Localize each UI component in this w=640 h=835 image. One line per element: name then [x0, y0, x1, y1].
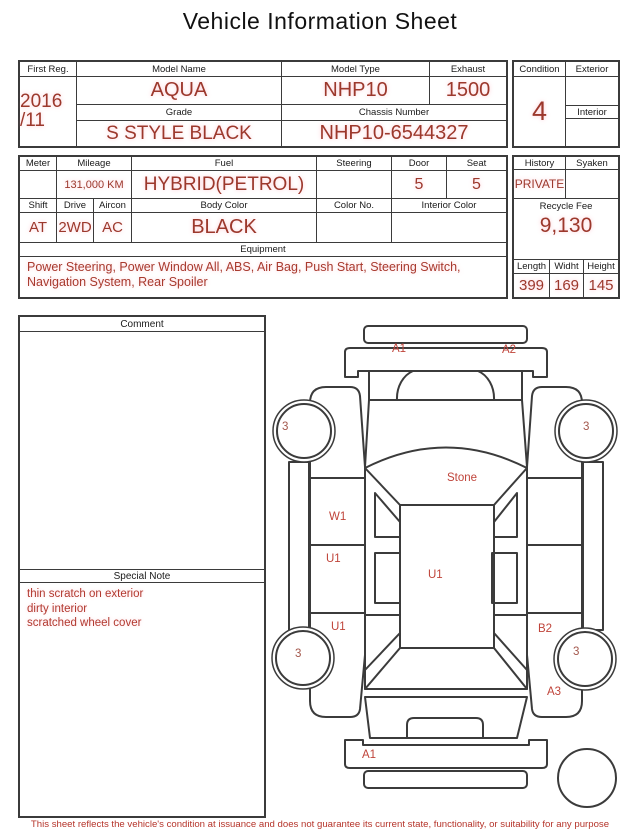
spare-tire — [558, 749, 616, 807]
right-rear-quarter-window — [494, 615, 527, 670]
body-color-label: Body Color — [132, 199, 317, 213]
interior-label: Interior — [566, 106, 618, 119]
front-bumper-top-strip — [364, 326, 527, 343]
damage-label-left-rear-door: U1 — [326, 553, 341, 565]
body-color-value: BLACK — [132, 213, 317, 243]
equipment-value: Power Steering, Power Window All, ABS, A… — [20, 257, 506, 297]
drive-value: 2WD — [57, 213, 94, 243]
right-front-door-panel — [527, 478, 582, 545]
damage-label-rear-right-wheel: 3 — [573, 646, 579, 658]
first-reg-label: First Reg. — [20, 62, 77, 77]
left-rear-quarter-window — [365, 615, 400, 670]
right-headlight-arc — [478, 371, 494, 400]
grade-label: Grade — [77, 105, 282, 121]
damage-label-windshield: Stone — [447, 472, 477, 484]
history-value: PRIVATE — [514, 170, 566, 199]
special-note-line: thin scratch on exterior — [27, 587, 257, 602]
syaken-label: Syaken — [566, 157, 618, 170]
equipment-label: Equipment — [20, 243, 506, 257]
grade-value: S STYLE BLACK — [77, 121, 282, 146]
model-type-value: NHP10 — [282, 77, 430, 105]
width-label: Widht — [550, 260, 584, 274]
syaken-value — [566, 170, 618, 199]
model-name-value: AQUA — [77, 77, 282, 105]
height-label: Height — [584, 260, 618, 274]
history-label: History — [514, 157, 566, 170]
damage-label-roof: U1 — [428, 569, 443, 581]
comment-panel: Comment Special Note thin scratch on ext… — [18, 315, 266, 818]
comment-body — [20, 332, 264, 569]
car-damage-diagram: A1 A2 3 3 Stone W1 U1 U1 U1 B2 3 3 A3 A1 — [270, 315, 640, 812]
model-name-label: Model Name — [77, 62, 282, 77]
seat-value: 5 — [447, 171, 506, 199]
damage-label-left-rocker: U1 — [331, 621, 346, 633]
page-title: Vehicle Information Sheet — [0, 8, 640, 35]
comment-label: Comment — [20, 317, 264, 332]
fuel-label: Fuel — [132, 157, 317, 171]
damage-label-front-left-wheel: 3 — [282, 421, 288, 433]
fuel-value: HYBRID(PETROL) — [132, 171, 317, 199]
steering-label: Steering — [317, 157, 392, 171]
special-note-label: Special Note — [20, 569, 264, 583]
right-door-window — [492, 553, 517, 603]
vehicle-spec-table: Meter Mileage Fuel Steering Door Seat 13… — [18, 155, 508, 299]
interior-color-label: Interior Color — [392, 199, 506, 213]
damage-label-left-front-door: W1 — [329, 511, 346, 523]
mileage-value: 131,000 KM — [57, 171, 132, 199]
rear-window — [365, 648, 527, 689]
length-label: Length — [514, 260, 550, 274]
condition-label: Condition — [514, 62, 566, 77]
height-value: 145 — [584, 274, 618, 297]
exterior-label: Exterior — [566, 62, 618, 77]
chassis-number-label: Chassis Number — [282, 105, 506, 121]
recycle-fee-value: 9,130 — [514, 214, 618, 260]
special-note-line: dirty interior — [27, 602, 257, 617]
aircon-value: AC — [94, 213, 132, 243]
hood-panel — [369, 371, 522, 400]
exhaust-label: Exhaust — [430, 62, 506, 77]
exhaust-value: 1500 — [430, 77, 506, 105]
drive-label: Drive — [57, 199, 94, 213]
left-door-window — [375, 553, 400, 603]
condition-value: 4 — [514, 77, 566, 146]
right-front-quarter-window — [494, 493, 517, 537]
interior-color-value — [392, 213, 506, 243]
left-headlight-arc — [397, 371, 413, 400]
damage-label-front-bumper-right: A2 — [502, 344, 516, 356]
vehicle-identity-table: First Reg. 2016 /11 Model Name AQUA Grad… — [18, 60, 508, 148]
first-reg-month: /11 — [20, 112, 45, 131]
rear-right-wheel-arch — [554, 628, 616, 690]
color-no-value — [317, 213, 392, 243]
right-rear-door-panel — [527, 545, 582, 613]
special-note-body: thin scratch on exterior dirty interior … — [20, 583, 264, 635]
meter-label: Meter — [20, 157, 57, 171]
damage-label-rear-bumper: A1 — [362, 749, 376, 761]
seat-label: Seat — [447, 157, 506, 171]
shift-label: Shift — [20, 199, 57, 213]
steering-value — [317, 171, 392, 199]
right-rocker-sill — [583, 462, 603, 630]
rear-left-wheel-arch — [272, 627, 334, 689]
length-value: 399 — [514, 274, 550, 297]
door-label: Door — [392, 157, 447, 171]
exterior-value — [566, 77, 618, 106]
condition-table: Condition 4 Exterior Interior — [512, 60, 620, 148]
car-outline-svg: A1 A2 3 3 Stone W1 U1 U1 U1 B2 3 3 A3 A1 — [270, 315, 640, 812]
recycle-fee-label: Recycle Fee — [514, 199, 618, 214]
first-reg-year: 2016 — [20, 93, 62, 112]
history-fee-table: History Syaken PRIVATE Recycle Fee 9,130… — [512, 155, 620, 299]
left-rocker-sill — [289, 462, 309, 630]
chassis-number-value: NHP10-6544327 — [282, 121, 506, 146]
front-bumper-face — [345, 348, 547, 377]
interior-value — [566, 119, 618, 146]
damage-label-rear-left-wheel: 3 — [295, 648, 301, 660]
first-reg-value: 2016 /11 — [20, 77, 77, 146]
aircon-label: Aircon — [94, 199, 132, 213]
disclaimer-text: This sheet reflects the vehicle's condit… — [0, 819, 640, 830]
meter-value — [20, 171, 57, 199]
left-a-pillar — [365, 400, 369, 467]
rear-bumper-bottom-strip — [364, 771, 527, 788]
mileage-label: Mileage — [57, 157, 132, 171]
damage-label-right-rear-fender: A3 — [547, 686, 561, 698]
model-type-label: Model Type — [282, 62, 430, 77]
damage-label-front-right-wheel: 3 — [583, 421, 589, 433]
license-plate-recess — [407, 718, 483, 738]
vehicle-information-sheet: Vehicle Information Sheet First Reg. 201… — [0, 0, 640, 835]
color-no-label: Color No. — [317, 199, 392, 213]
damage-label-right-quarter: B2 — [538, 623, 552, 635]
damage-label-front-bumper-left: A1 — [392, 343, 406, 355]
width-value: 169 — [550, 274, 584, 297]
special-note-line: scratched wheel cover — [27, 616, 257, 631]
right-a-pillar — [522, 400, 527, 467]
windshield-outline — [365, 448, 527, 506]
shift-value: AT — [20, 213, 57, 243]
door-value: 5 — [392, 171, 447, 199]
